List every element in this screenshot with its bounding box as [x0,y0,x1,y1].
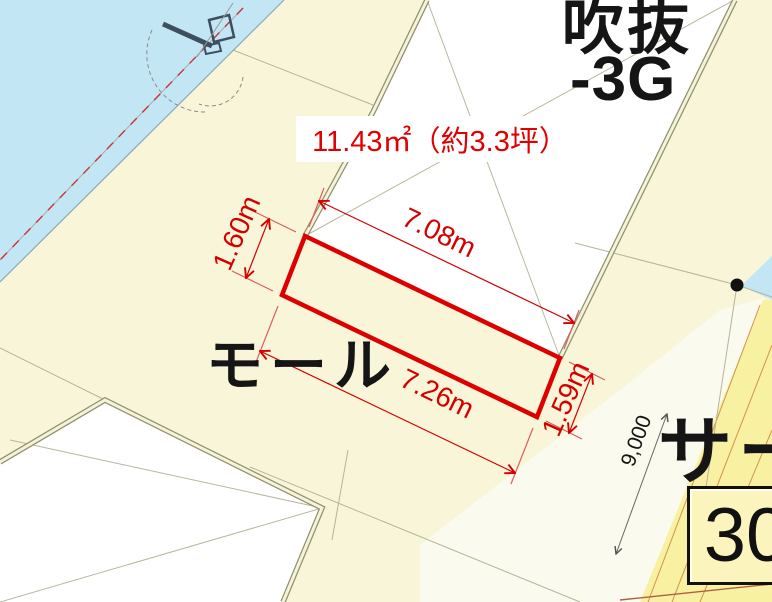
service-label: サー [658,392,772,499]
water-wedge [741,256,772,300]
mall-label: モール [206,320,398,402]
area-label-box: 11.43㎡（約3.3坪） [296,116,584,162]
parcel-number-text: 30 [704,498,772,574]
door-swing-arc-small [199,77,243,106]
void-label-line2: -3G [570,44,676,115]
area-label-text: 11.43㎡（約3.3坪） [312,118,568,160]
parcel-number-box: 30 [687,486,772,585]
survey-point-marker [731,279,744,292]
cad-drawing-viewport[interactable]: 吹抜 -3G 11.43㎡（約3.3坪） モール サー 9,000 30 7.0… [0,0,772,602]
